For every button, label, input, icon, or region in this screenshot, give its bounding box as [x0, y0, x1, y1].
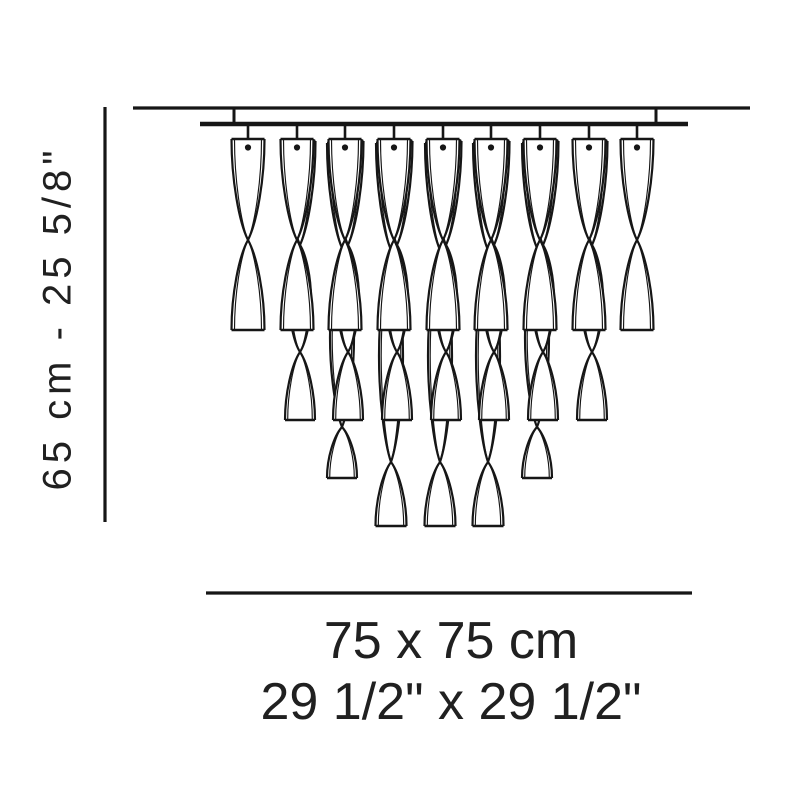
width-cm-label: 75 x 75 cm [261, 611, 642, 672]
twisted-glass-piece [573, 139, 606, 330]
twisted-glass-piece [427, 139, 460, 330]
pendant-column-9 [621, 139, 654, 330]
twisted-glass-piece [378, 139, 411, 330]
twisted-glass-piece [329, 139, 362, 330]
hanging-hole [294, 144, 300, 150]
hanging-hole [537, 144, 543, 150]
width-dimension-labels: 75 x 75 cm 29 1/2" x 29 1/2" [261, 611, 642, 733]
pendant-column-4 [376, 139, 413, 526]
twisted-glass-piece [524, 139, 557, 330]
hanging-hole [391, 144, 397, 150]
twisted-glass-piece [232, 139, 265, 330]
twisted-glass-piece [281, 139, 314, 330]
hanging-hole [488, 144, 494, 150]
pendant-column-8 [573, 139, 608, 420]
hanging-hole [342, 144, 348, 150]
width-inches-label: 29 1/2" x 29 1/2" [261, 672, 642, 733]
pendant-column-2 [281, 139, 316, 420]
hanging-hole [586, 144, 592, 150]
pendant-column-6 [473, 139, 510, 526]
diagram-canvas: 65 cm - 25 5/8" 75 x 75 cm 29 1/2" x 29 … [0, 0, 800, 800]
pendant-column-7 [522, 139, 559, 478]
twisted-glass-piece [621, 139, 654, 330]
hanging-hole [245, 144, 251, 150]
twisted-glass-piece [475, 139, 508, 330]
height-dimension-label: 65 cm - 25 5/8" [36, 146, 81, 491]
pendant-column-5 [425, 139, 462, 526]
hanging-hole [634, 144, 640, 150]
pendant-column-1 [232, 139, 265, 330]
hanging-hole [440, 144, 446, 150]
pendant-column-3 [327, 139, 364, 478]
